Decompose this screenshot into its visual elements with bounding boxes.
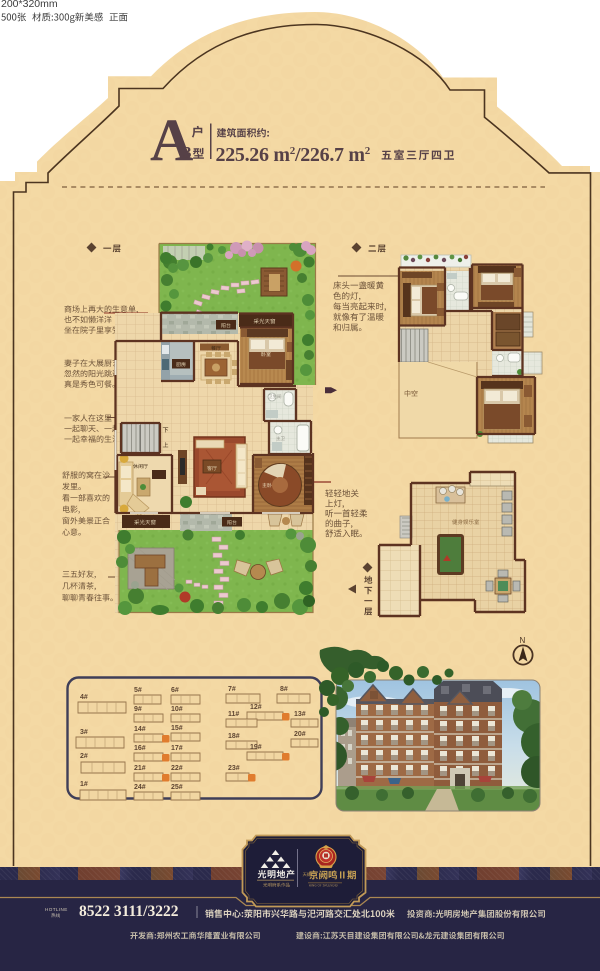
svg-text:18#: 18# xyxy=(228,733,240,740)
svg-text:13#: 13# xyxy=(294,711,306,718)
svg-text:5#: 5# xyxy=(134,687,142,694)
svg-text:23#: 23# xyxy=(228,765,240,772)
svg-text:17#: 17# xyxy=(171,745,183,752)
svg-text:10#: 10# xyxy=(171,706,183,713)
svg-text:11#: 11# xyxy=(228,711,239,718)
svg-text:3#: 3# xyxy=(80,729,88,736)
svg-text:20#: 20# xyxy=(294,731,306,738)
svg-text:N: N xyxy=(520,636,526,645)
svg-text:22#: 22# xyxy=(171,765,183,772)
svg-text:19#: 19# xyxy=(250,744,262,751)
svg-text:21#: 21# xyxy=(134,765,146,772)
svg-text:16#: 16# xyxy=(134,745,146,752)
svg-text:6#: 6# xyxy=(171,687,179,694)
svg-text:24#: 24# xyxy=(134,784,146,791)
svg-text:9#: 9# xyxy=(134,706,142,713)
svg-text:25#: 25# xyxy=(171,784,183,791)
svg-text:15#: 15# xyxy=(171,725,183,732)
svg-text:8#: 8# xyxy=(280,686,288,693)
svg-text:4#: 4# xyxy=(80,694,88,701)
svg-text:14#: 14# xyxy=(134,726,146,733)
svg-text:7#: 7# xyxy=(228,686,236,693)
svg-text:1#: 1# xyxy=(80,781,88,788)
svg-text:2#: 2# xyxy=(80,753,88,760)
svg-text:12#: 12# xyxy=(250,704,262,711)
